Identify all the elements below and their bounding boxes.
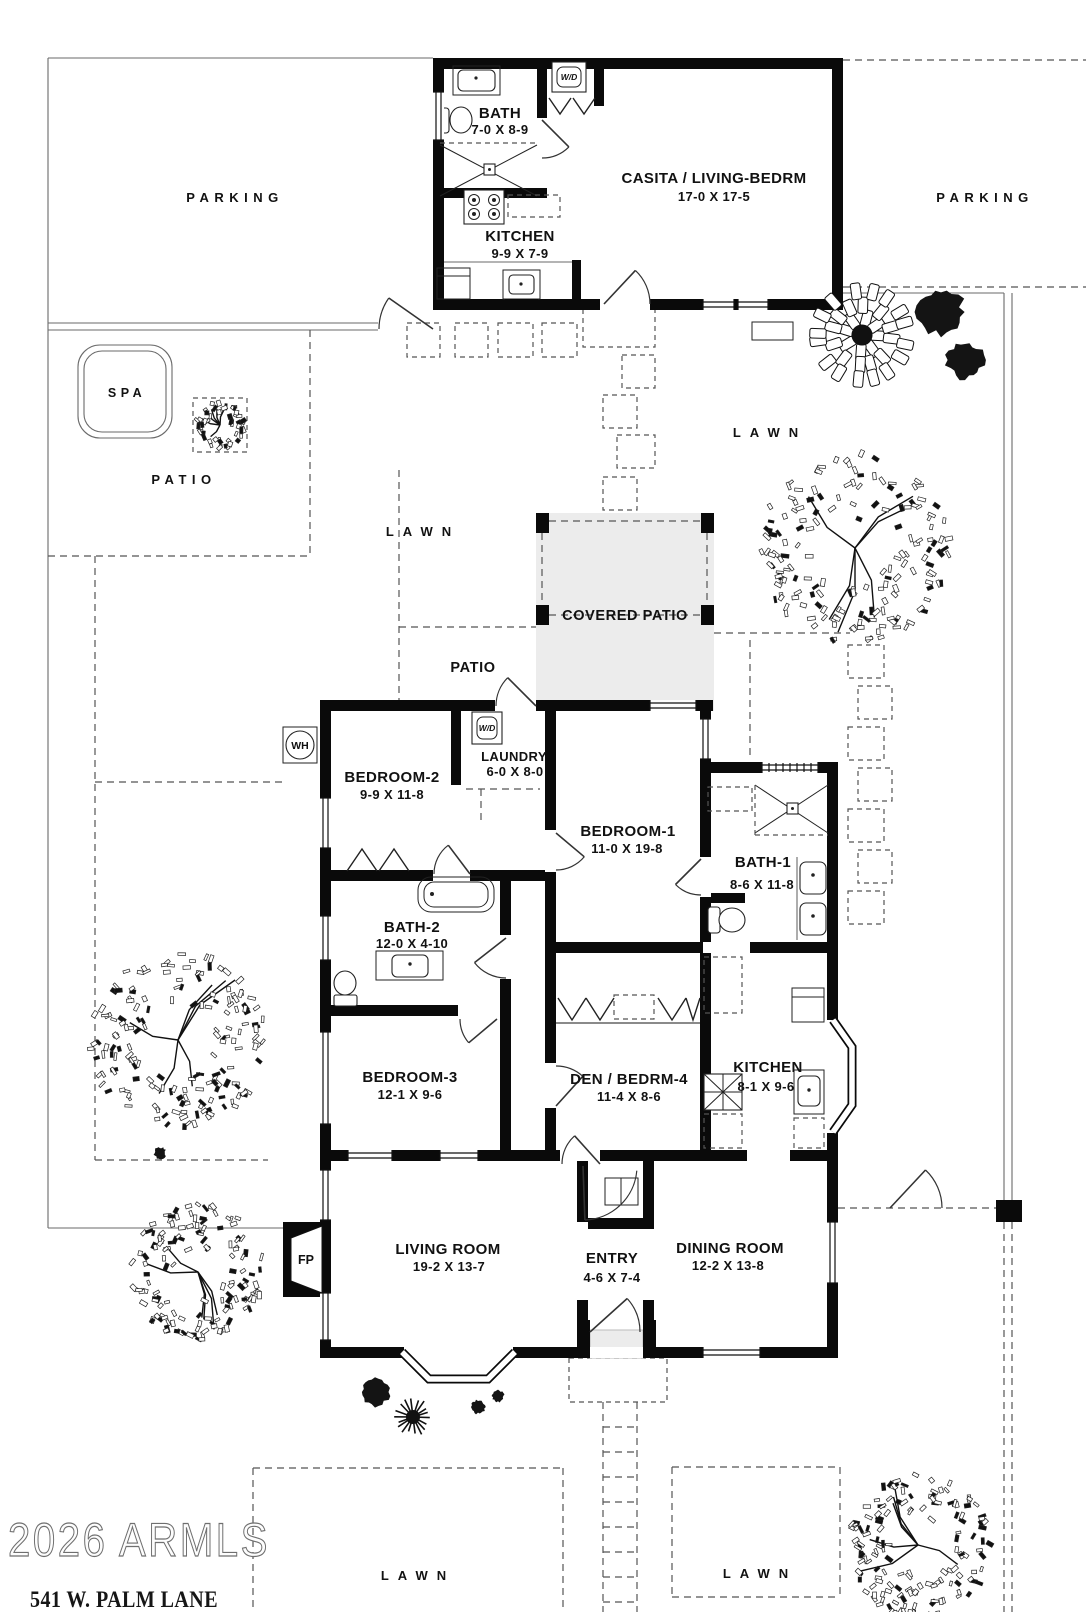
casita-bath-label: BATH <box>479 105 521 122</box>
den-dims: 11-4 X 8-6 <box>597 1089 661 1104</box>
casita-stove <box>464 190 504 224</box>
address: 541 W. PALM LANE <box>30 1587 218 1612</box>
bath2-dims: 12-0 X 4-10 <box>376 936 448 951</box>
patio-left-label: PATIO <box>151 472 216 487</box>
entry-label: ENTRY <box>586 1250 638 1267</box>
bath2-label: BATH-2 <box>384 919 440 936</box>
fence-post <box>996 1200 1022 1222</box>
laundry-label: LAUNDRY <box>481 749 547 764</box>
parking-right-label: PARKING <box>936 190 1033 205</box>
laundry-wd-label: W/D <box>479 723 496 733</box>
water-heater-label: WH <box>291 740 309 752</box>
kitchen-label: KITCHEN <box>733 1059 802 1076</box>
bath1-toilet <box>708 907 745 933</box>
casita-bath-dims: 7-0 X 8-9 <box>471 122 528 137</box>
casita-living-dims: 17-0 X 17-5 <box>678 189 750 204</box>
laundry-dims: 6-0 X 8-0 <box>486 764 543 779</box>
floor-plan-canvas: PARKING PARKING SPA PATIO LAWN LAWN COVE… <box>0 0 1086 1612</box>
lawn-left-label: LAWN <box>386 524 460 539</box>
fireplace-label: FP <box>298 1253 314 1267</box>
bedroom2-dims: 9-9 X 11-8 <box>360 787 424 802</box>
watermark: 2026 ARMLS <box>8 1513 270 1566</box>
casita-living-label: CASITA / LIVING-BEDRM <box>621 170 806 187</box>
bath1-sink-1 <box>800 862 826 894</box>
bedroom1-dims: 11-0 X 19-8 <box>591 841 663 856</box>
bath1-label: BATH-1 <box>735 854 791 871</box>
floor-plan-page: PARKING PARKING SPA PATIO LAWN LAWN COVE… <box>0 0 1086 1612</box>
casita-wd-label: W/D <box>561 72 578 82</box>
kitchen-dims: 8-1 X 9-6 <box>737 1079 794 1094</box>
casita-bath-sink <box>453 66 500 95</box>
covered-patio-label: COVERED PATIO <box>562 608 688 624</box>
entry-dims: 4-6 X 7-4 <box>583 1270 640 1285</box>
dining-room-dims: 12-2 X 13-8 <box>692 1258 764 1273</box>
bedroom3-label: BEDROOM-3 <box>362 1069 457 1086</box>
lawn-bottom-left-label: LAWN <box>381 1568 455 1583</box>
dining-room-label: DINING ROOM <box>676 1240 784 1257</box>
living-room-dims: 19-2 X 13-7 <box>413 1259 485 1274</box>
lawn-upper-right-label: LAWN <box>733 425 807 440</box>
bedroom3-dims: 12-1 X 9-6 <box>378 1087 443 1102</box>
patio-mid-label: PATIO <box>450 660 495 676</box>
bath1-sink-2 <box>800 903 826 935</box>
bedroom1-label: BEDROOM-1 <box>580 823 675 840</box>
casita-kitchen-label: KITCHEN <box>485 228 554 245</box>
living-room-label: LIVING ROOM <box>395 1241 500 1258</box>
spa-label: SPA <box>108 386 146 400</box>
lawn-bottom-right-label: LAWN <box>723 1566 797 1581</box>
kitchen-stove <box>704 1074 742 1110</box>
den-label: DEN / BEDRM-4 <box>570 1071 688 1088</box>
bath2-toilet <box>334 971 357 1006</box>
parking-left-label: PARKING <box>186 190 283 205</box>
bath1-dims: 8-6 X 11-8 <box>730 877 794 892</box>
bedroom2-label: BEDROOM-2 <box>344 769 439 786</box>
casita-kitchen-dims: 9-9 X 7-9 <box>491 246 548 261</box>
